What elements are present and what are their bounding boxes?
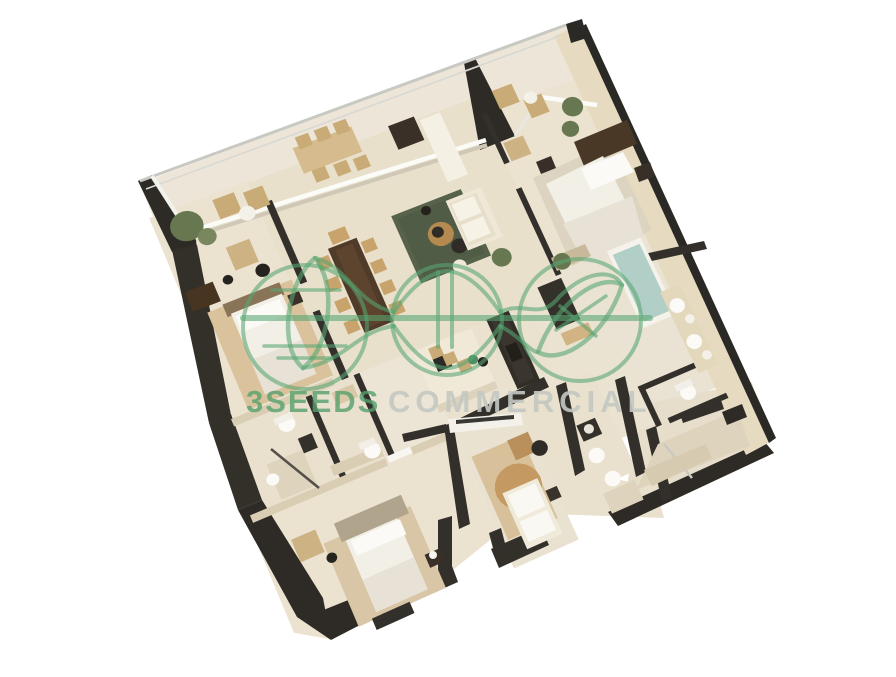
svg-text:3SEEDS: 3SEEDS	[246, 384, 380, 419]
svg-text:COMMERCIAL: COMMERCIAL	[388, 384, 652, 419]
